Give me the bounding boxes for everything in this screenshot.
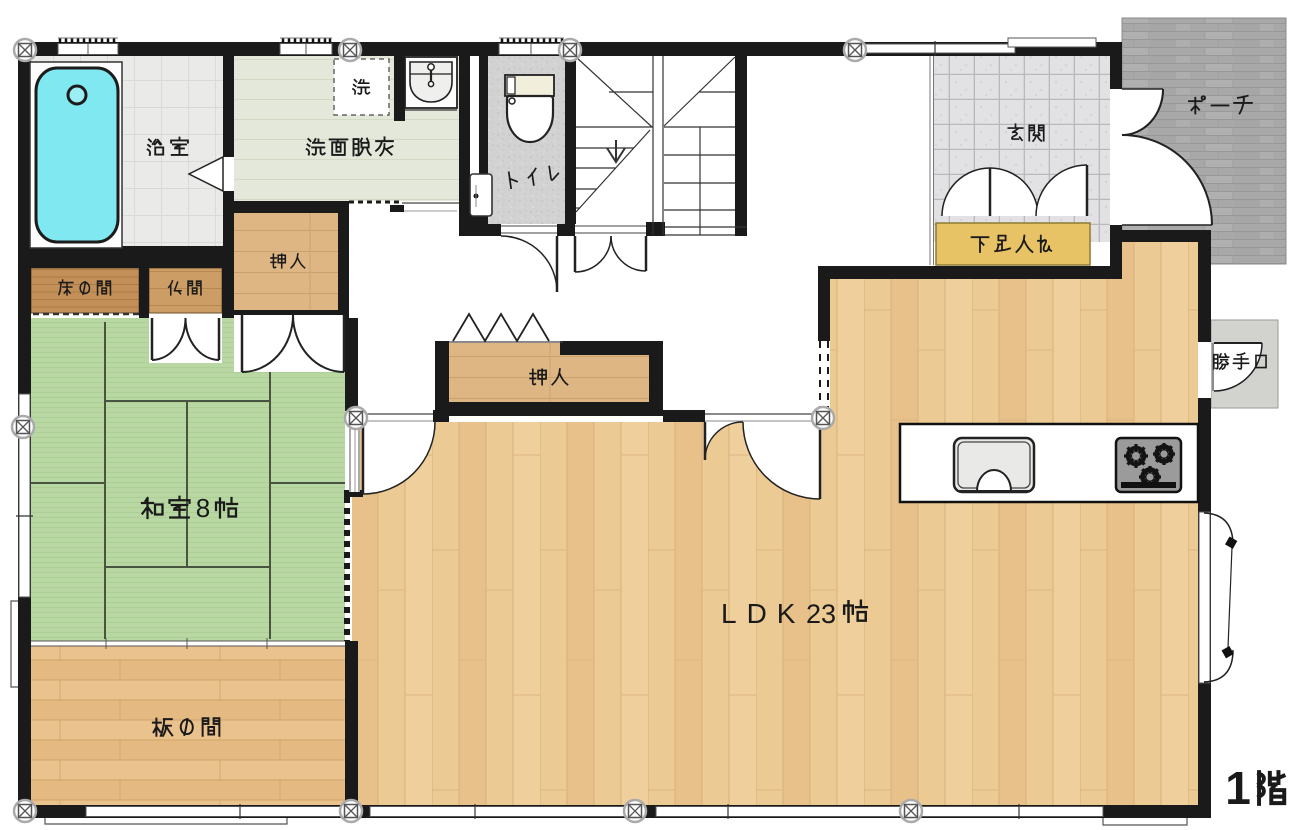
svg-text:8: 8 <box>196 493 210 523</box>
svg-text:1: 1 <box>1225 762 1251 814</box>
svg-text:23: 23 <box>806 599 836 629</box>
svg-text:LDK: LDK <box>721 598 805 629</box>
